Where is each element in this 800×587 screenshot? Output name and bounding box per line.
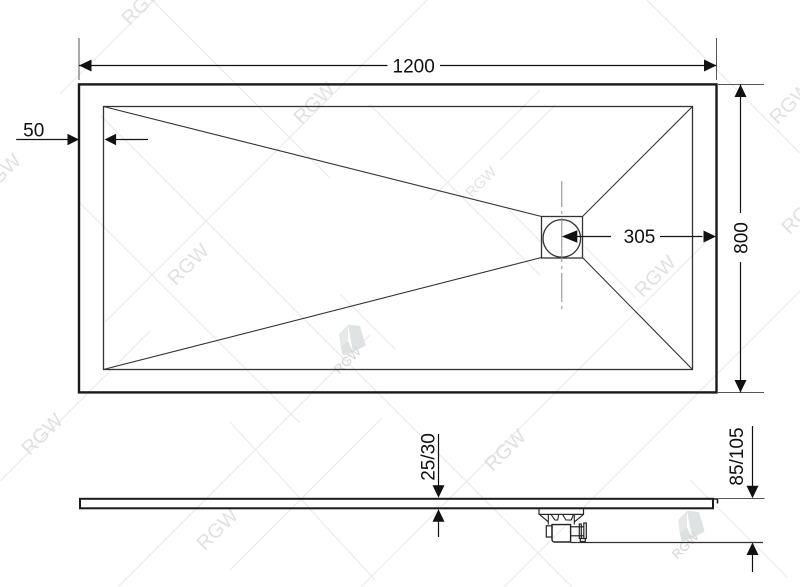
svg-text:800: 800 — [731, 222, 752, 254]
svg-text:305: 305 — [624, 227, 656, 248]
svg-text:85/105: 85/105 — [727, 427, 748, 485]
svg-text:25/30: 25/30 — [419, 433, 440, 481]
svg-text:1200: 1200 — [393, 56, 435, 77]
svg-text:50: 50 — [23, 121, 44, 142]
